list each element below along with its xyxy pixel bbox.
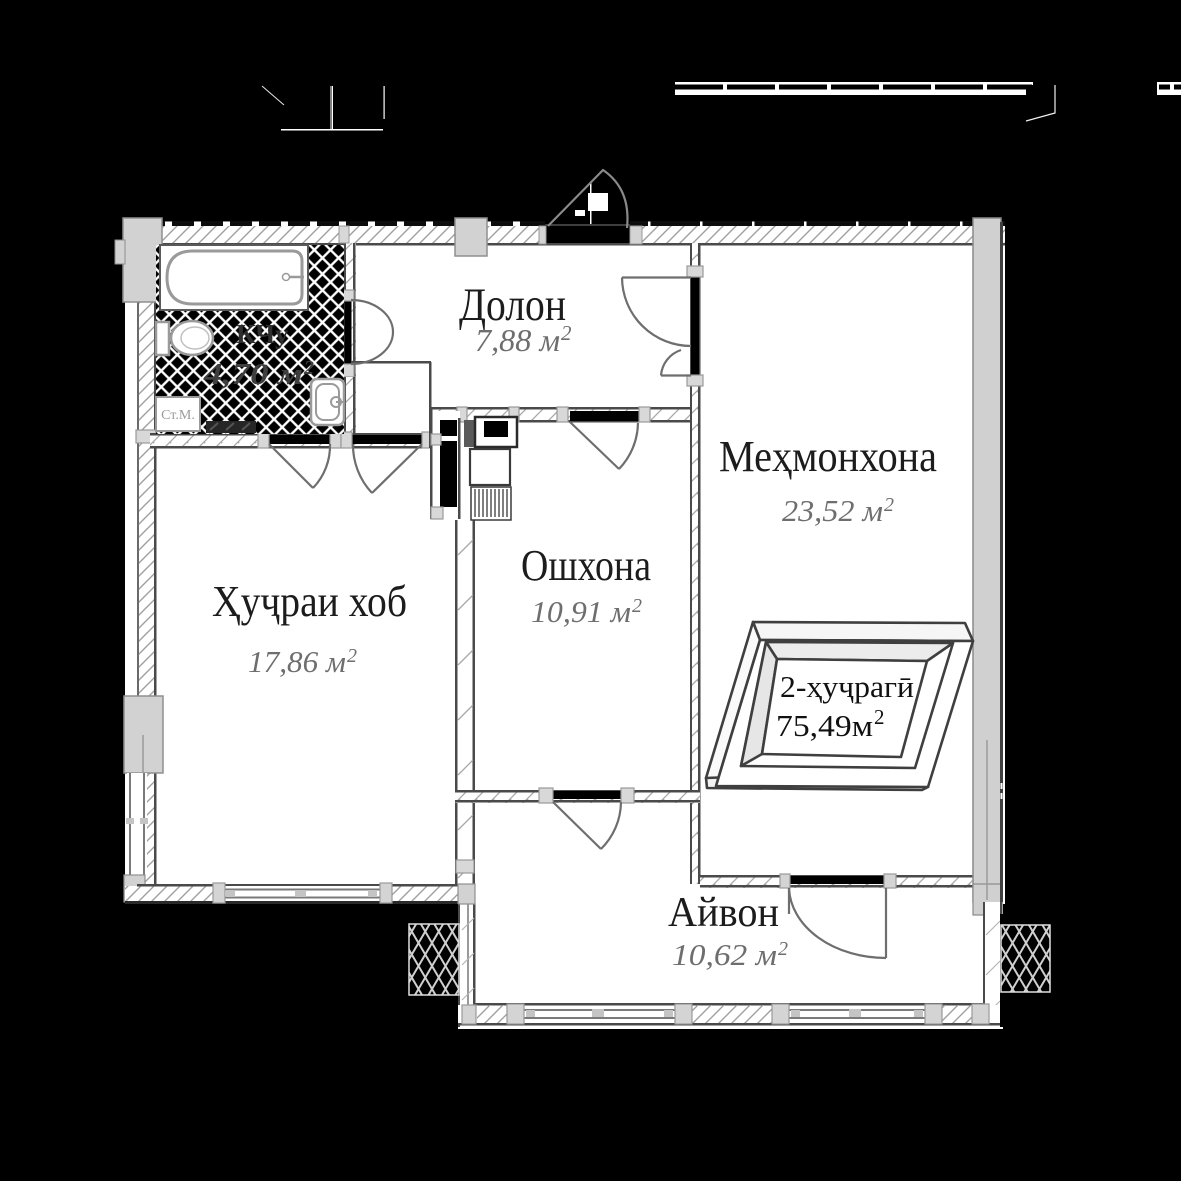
svg-text:2: 2 [884,494,894,516]
svg-text:2: 2 [778,938,788,960]
svg-text:10,91 м: 10,91 м [531,594,631,629]
svg-text:2: 2 [561,321,572,345]
svg-text:2: 2 [303,357,314,379]
svg-text:Меҳмонхона: Меҳмонхона [719,432,937,481]
svg-text:2: 2 [874,705,885,729]
svg-text:2: 2 [347,645,357,667]
svg-text:17,86 м: 17,86 м [248,644,346,679]
svg-text:КЧу: КЧу [236,319,289,349]
svg-text:10,62 м: 10,62 м [672,937,777,972]
svg-text:75,49м: 75,49м [776,708,873,743]
svg-text:Ҳуҷраи хоб: Ҳуҷраи хоб [212,577,407,626]
svg-text:23,52 м: 23,52 м [782,493,883,528]
svg-text:2-ҳуҷрагӣ: 2-ҳуҷрагӣ [780,669,914,704]
svg-text:2: 2 [632,595,642,617]
svg-text:7,88 м: 7,88 м [475,322,560,358]
svg-text:Ошхона: Ошхона [521,541,651,590]
svg-text:4,70 м: 4,70 м [203,356,303,391]
svg-text:Ст.М.: Ст.М. [161,408,195,423]
svg-text:Айвон: Айвон [668,890,779,936]
